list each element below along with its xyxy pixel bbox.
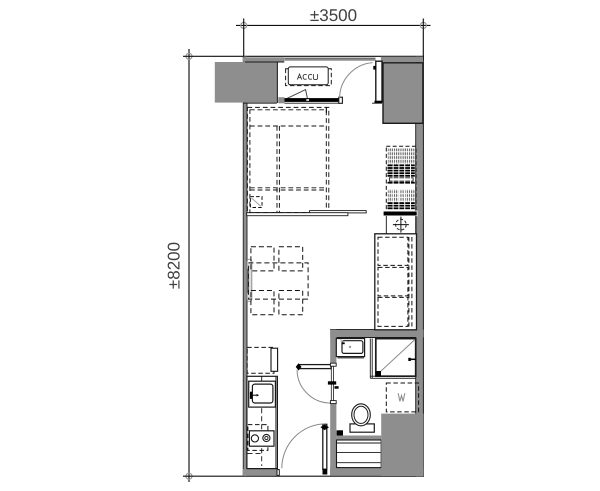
svg-text:±8200: ±8200	[165, 242, 184, 289]
svg-text:±3500: ±3500	[310, 6, 357, 25]
